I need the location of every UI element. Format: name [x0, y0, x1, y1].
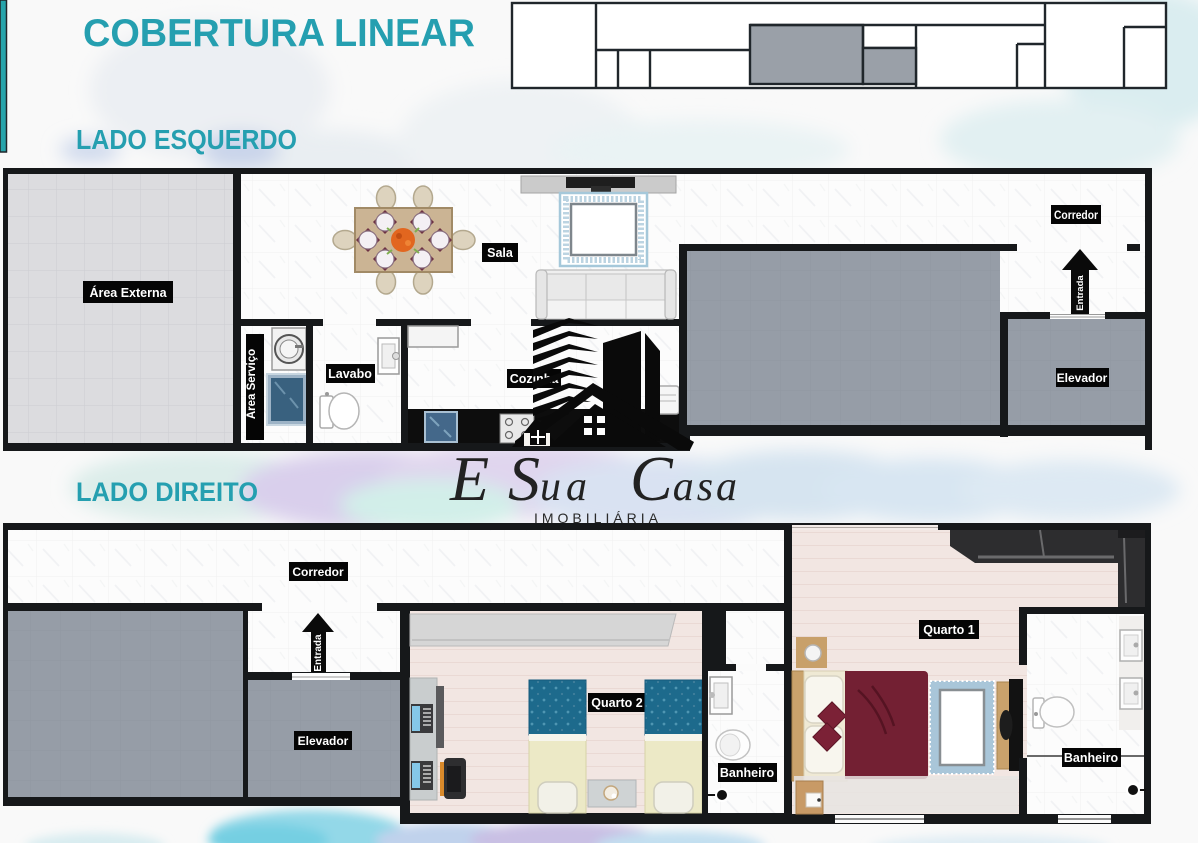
svg-text:Entrada: Entrada: [1075, 275, 1086, 311]
svg-text:Lavabo: Lavabo: [328, 367, 372, 381]
svg-text:Banheiro: Banheiro: [720, 766, 775, 780]
svg-text:Quarto 2: Quarto 2: [591, 696, 642, 710]
svg-text:Banheiro: Banheiro: [1064, 751, 1119, 765]
svg-text:Corredor: Corredor: [292, 565, 344, 579]
svg-text:Elevador: Elevador: [298, 734, 349, 748]
svg-text:Área Externa: Área Externa: [89, 285, 167, 300]
svg-text:Entrada: Entrada: [313, 634, 324, 672]
svg-text:LADO DIREITO: LADO DIREITO: [76, 477, 258, 507]
svg-text:Área Serviço: Área Serviço: [245, 349, 258, 419]
svg-text:Sala: Sala: [487, 246, 514, 260]
svg-text:Quarto 1: Quarto 1: [923, 623, 974, 637]
svg-text:Elevador: Elevador: [1057, 371, 1108, 385]
svg-text:LADO ESQUERDO: LADO ESQUERDO: [76, 124, 297, 155]
svg-text:COBERTURA LINEAR: COBERTURA LINEAR: [83, 12, 475, 55]
svg-text:Corredor: Corredor: [1054, 210, 1098, 222]
